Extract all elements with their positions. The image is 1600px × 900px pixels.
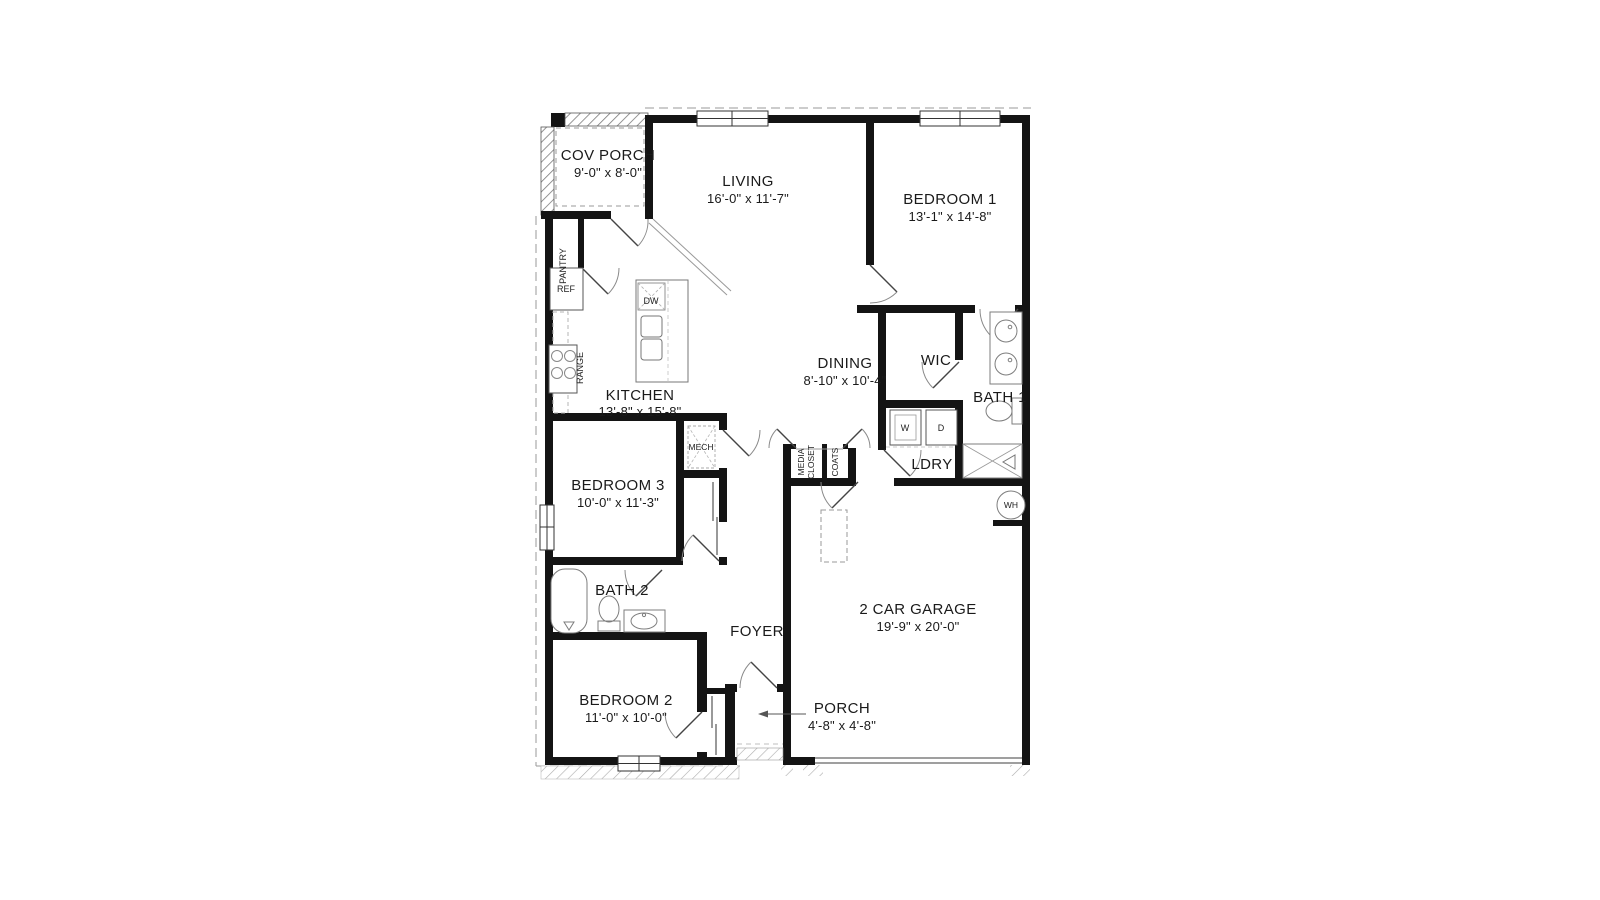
wh-label: WH — [1004, 500, 1018, 510]
porch-door-arc — [638, 219, 648, 246]
floor-plan-page: COV PORCH 9'-0" x 8'-0" LIVING 16'-0" x … — [0, 0, 1600, 900]
kitchen-dims: 13'-8" x 15'-8" — [599, 404, 682, 419]
kitchen-label: KITCHEN — [606, 387, 675, 404]
bedroom3-dims: 10'-0" x 11'-3" — [577, 495, 659, 510]
pantry-door-leaf — [582, 268, 608, 294]
ldry-door-leaf — [884, 450, 910, 476]
garage-fixtures — [821, 491, 1025, 562]
garage-dims: 19'-9" x 20'-0" — [877, 619, 960, 634]
bedroom1-window — [920, 111, 1000, 126]
wic-label: WIC — [921, 352, 951, 369]
pantry-label: PANTRY — [558, 248, 568, 284]
porch-leader-arrow — [758, 711, 806, 718]
bedroom1-dims: 13'-1" x 14'-8" — [909, 209, 992, 224]
coats-door-leaf — [843, 429, 862, 448]
mech-door-leaf — [723, 430, 749, 456]
front-door-leaf — [751, 662, 777, 688]
bath1-label: BATH 1 — [973, 389, 1027, 406]
bath2-fixtures — [551, 569, 665, 633]
garage-door — [815, 758, 1022, 763]
bedroom2-label: BEDROOM 2 — [579, 692, 673, 709]
bedroom2-window — [618, 756, 660, 771]
mech-door-arc — [749, 430, 760, 456]
bedroom3-door-leaf — [693, 535, 719, 561]
bath2-toilet — [598, 596, 620, 631]
front-door-arc — [740, 662, 751, 688]
bedroom1-door-arc — [870, 292, 897, 303]
bath2-tub — [551, 569, 587, 633]
bedroom3-window — [540, 505, 554, 550]
porch-label: PORCH — [814, 700, 870, 717]
washer-label: W — [901, 423, 910, 433]
range — [549, 345, 577, 393]
living-label: LIVING — [722, 173, 774, 190]
dining-label: DINING — [818, 355, 873, 372]
media-closet-label-1: MEDIA — [796, 448, 806, 475]
cov-porch-label: COV PORCH — [561, 147, 655, 164]
bedroom2-dims: 11'-0" x 10'-0" — [585, 710, 667, 725]
ref-label: REF — [557, 284, 576, 294]
laundry-fixtures — [886, 410, 957, 447]
bedroom1-label: BEDROOM 1 — [903, 191, 997, 208]
bedroom2-door-leaf — [676, 712, 702, 738]
bedroom2-closet-slider — [712, 696, 716, 755]
porch-dims: 4'-8" x 4'-8" — [808, 718, 876, 733]
bedroom1-door-leaf — [870, 265, 897, 292]
floor-plan-drawing: COV PORCH 9'-0" x 8'-0" LIVING 16'-0" x … — [0, 0, 1600, 900]
garage-apron-hatch-left — [803, 765, 823, 776]
garage-apron-hatch-right — [1010, 765, 1030, 776]
media-closet-door-arc — [769, 429, 777, 448]
coats-door-arc — [862, 429, 870, 448]
bath1-shower — [963, 444, 1022, 478]
bath2-vanity — [624, 610, 665, 632]
ldry-label: LDRY — [911, 456, 952, 473]
living-window — [697, 111, 768, 126]
cov-porch-walls — [541, 113, 648, 215]
bath1-vanity — [990, 312, 1022, 384]
coats-label: COATS — [830, 447, 840, 476]
dryer-label: D — [938, 423, 945, 433]
pantry-door-arc — [608, 268, 619, 294]
cov-porch-dims: 9'-0" x 8'-0" — [574, 165, 642, 180]
dw-label: DW — [644, 296, 659, 306]
bedroom3-closet-slider — [713, 482, 717, 555]
bath2-label: BATH 2 — [595, 582, 649, 599]
living-dims: 16'-0" x 11'-7" — [707, 191, 789, 206]
porch-door-leaf — [611, 219, 638, 246]
bedroom3-label: BEDROOM 3 — [571, 477, 665, 494]
dining-dims: 8'-10" x 10'-4" — [804, 373, 887, 388]
garage-label: 2 CAR GARAGE — [859, 601, 976, 618]
range-label: RANGE — [575, 352, 585, 384]
bath1-door-arc — [980, 309, 991, 336]
media-closet-label-2: CLOSET — [806, 445, 816, 479]
foyer-label: FOYER — [730, 623, 784, 640]
garage-dashed-platform — [821, 510, 847, 562]
mech-label: MECH — [688, 442, 713, 452]
